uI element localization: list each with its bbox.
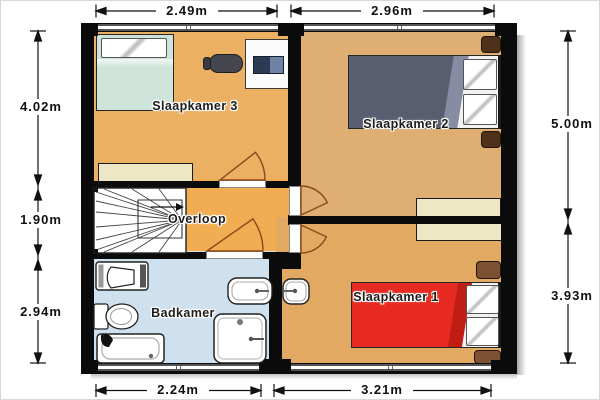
dimension-label: 3.93m (541, 288, 600, 304)
room-label-overloop: Overloop (147, 212, 247, 226)
room-label-slaapkamer-2: Slaapkamer 2 (336, 117, 476, 131)
washbasin-icon (283, 279, 309, 304)
dimension-label: 2.94m (10, 304, 72, 320)
dimension-label: 4.02m (10, 99, 72, 115)
door-swing-icon (301, 186, 327, 215)
room-label-slaapkamer-3: Slaapkamer 3 (125, 99, 265, 113)
dimension-label: 2.24m (147, 382, 209, 398)
dimension-label: 2.49m (156, 3, 218, 19)
door-swing-icon (301, 225, 326, 253)
room-label-slaapkamer-1: Slaapkamer 1 (326, 290, 466, 304)
bathtub-icon (97, 334, 164, 363)
dimension-label: 2.96m (361, 3, 423, 19)
dimension-label: 1.90m (10, 212, 72, 228)
room-label-badkamer: Badkamer (133, 306, 233, 320)
toilet-icon (96, 262, 148, 290)
floorplan-canvas: 2.49m 2.96m 2.24m 3.21m 4.02m 1.90m 2.94… (0, 0, 600, 400)
shower-icon (214, 314, 266, 363)
door-swing-icon (220, 152, 265, 180)
toilet-icon (94, 304, 138, 329)
washbasin-icon (228, 278, 272, 304)
plan-detail-overlay (1, 1, 600, 400)
dimension-label: 3.21m (351, 382, 413, 398)
dimension-label: 5.00m (541, 116, 600, 132)
